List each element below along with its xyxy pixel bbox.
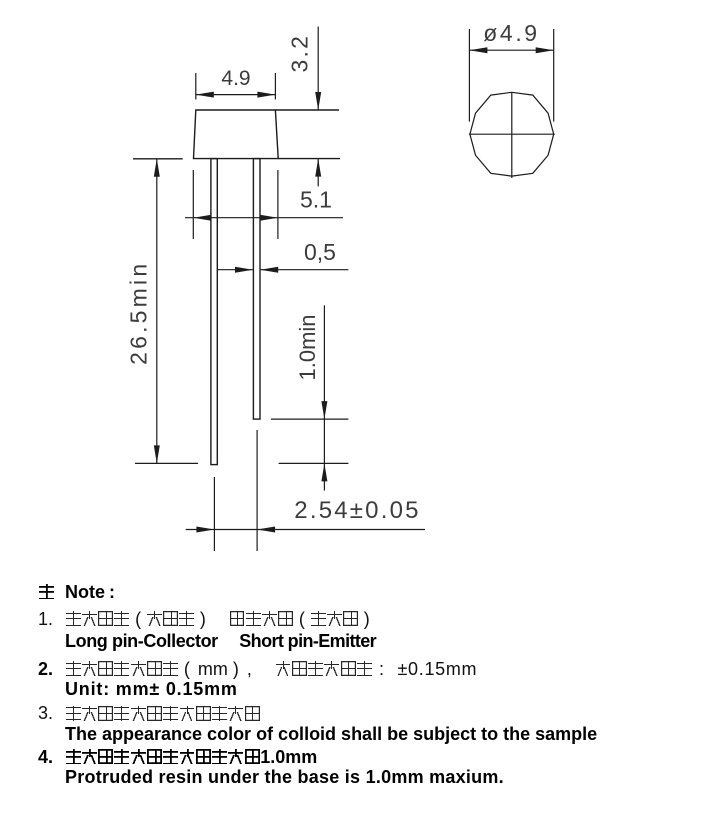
svg-text:3.2: 3.2 [287, 34, 313, 73]
svg-text:5.1: 5.1 [300, 187, 332, 213]
svg-text:26.5min: 26.5min [126, 261, 152, 365]
svg-text:0,5: 0,5 [304, 239, 336, 265]
svg-text:ø4.9: ø4.9 [483, 20, 539, 46]
svg-text:1.0min: 1.0min [295, 314, 320, 380]
svg-text:2.54±0.05: 2.54±0.05 [294, 497, 420, 524]
svg-text:4.9: 4.9 [221, 67, 250, 90]
